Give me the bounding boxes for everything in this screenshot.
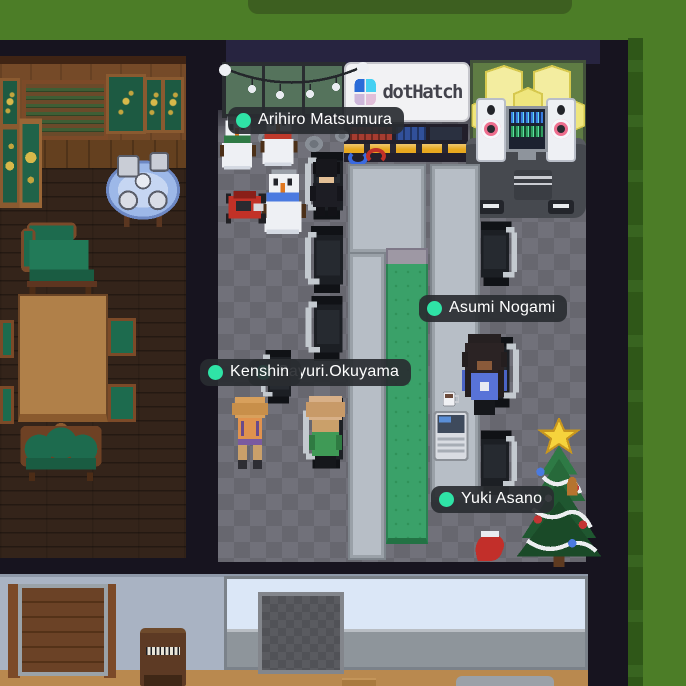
tweeter (487, 105, 495, 115)
online-status-dot (236, 113, 251, 128)
online-status-dot (439, 492, 454, 507)
player-nametag: Asumi Nogami (419, 295, 567, 322)
lower-room-couch (456, 676, 554, 686)
monitor-stand (518, 150, 536, 160)
piano-keys (146, 647, 180, 655)
avatar-green-shirt-seated[interactable] (306, 396, 345, 468)
wooden-cabinet (18, 584, 108, 676)
game-map-canvas[interactable]: dotHatch (0, 0, 686, 686)
waveform-green (511, 126, 543, 137)
player-name: Arihiro Matsumura (258, 111, 392, 129)
lower-room-table (342, 678, 376, 686)
office-desk-left-arm (348, 252, 386, 560)
speaker-right (546, 98, 576, 162)
waveform-blue (511, 112, 543, 123)
flower-painting (106, 74, 146, 134)
dark-equipment (430, 127, 462, 140)
avatar-blue-sweater[interactable] (462, 334, 507, 424)
player-name: Asumi Nogami (449, 299, 555, 317)
building-shadow (248, 0, 572, 14)
dining-chair (0, 320, 14, 358)
dining-chair (108, 318, 136, 356)
player-nametag: Arihiro Matsumura (228, 107, 404, 134)
player-name: Yuki Asano (461, 490, 542, 508)
sign-brand-text: dotHatch (382, 81, 462, 103)
coffee-mug (443, 390, 459, 408)
avatar-tan-hat-standing[interactable] (232, 394, 268, 472)
upright-piano[interactable] (140, 628, 186, 686)
player-nametag: Yuki Asano (431, 486, 554, 513)
meeting-room-table (18, 294, 108, 422)
office-chair (302, 226, 346, 296)
speaker-left (476, 98, 506, 162)
bulletin-board (258, 592, 344, 674)
settee-bench (20, 420, 102, 484)
chaise-couch (18, 222, 100, 296)
online-status-dot (208, 365, 223, 380)
red-go-kart (226, 186, 266, 228)
woofer (551, 119, 571, 139)
avatar-top-hat[interactable] (310, 156, 343, 216)
online-status-dot (427, 301, 442, 316)
folding-screen (0, 118, 42, 214)
wall-panel-art (144, 77, 164, 133)
office-chair (302, 296, 346, 364)
wall-panel-art (162, 77, 184, 133)
table-foot (548, 200, 574, 214)
player-nametag: Kenshin (200, 359, 301, 386)
tweeter (557, 105, 565, 115)
dining-chair (108, 384, 136, 422)
dining-chair (0, 386, 14, 424)
tree-line (628, 38, 643, 686)
table-foot (478, 200, 504, 214)
dj-drawer (514, 170, 552, 200)
red-santa-sack (472, 522, 508, 564)
snowman-blue-scarf (262, 162, 306, 246)
player-name: Kenshin (230, 363, 289, 381)
waveform-monitor (506, 106, 548, 152)
tea-set-table (106, 150, 180, 230)
piano-base (144, 675, 182, 686)
woofer (481, 119, 501, 139)
office-desk-left-top (348, 164, 426, 254)
office-chair (478, 220, 520, 290)
